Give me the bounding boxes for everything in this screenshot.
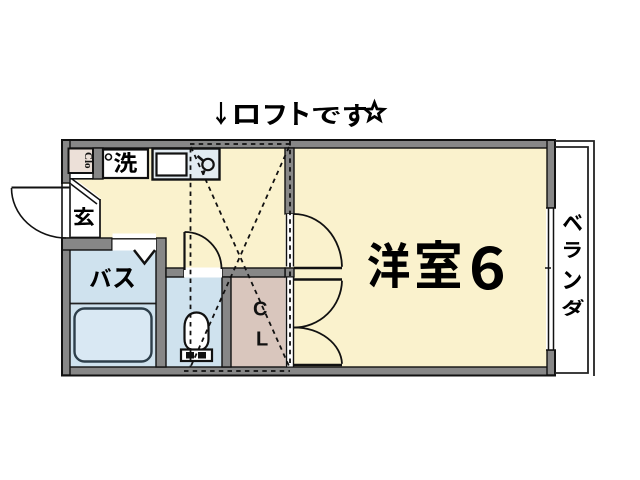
svg-text:Clo: Clo — [82, 152, 94, 169]
svg-text:L: L — [256, 329, 268, 351]
svg-text:C: C — [253, 299, 267, 321]
